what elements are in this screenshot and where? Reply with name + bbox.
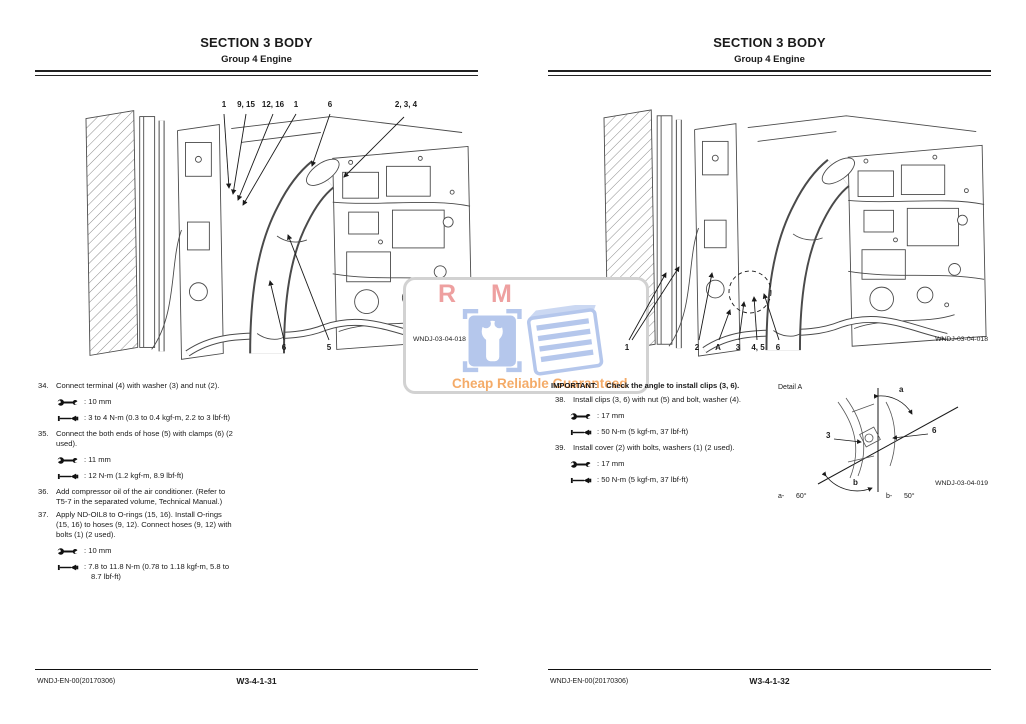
watermark-wrench-book-icon (440, 305, 620, 377)
angle-b-value: 50° (904, 493, 915, 500)
wrench-spec: : 10 mm (57, 397, 334, 407)
manual-spread: SECTION 3 BODY Group 4 Engine 1 9, 15 12… (0, 0, 1026, 724)
callout-label: 12, 16 (262, 100, 284, 109)
angle-a-value: 60° (796, 493, 807, 500)
callout-label: 9, 15 (237, 100, 255, 109)
callout-label: 1 (625, 343, 629, 352)
instruction-steps: IMPORTANT: Check the angle to install cl… (551, 381, 861, 491)
wrench-icon (57, 456, 79, 465)
torque-wrench-icon (57, 563, 79, 572)
angle-b-key: b- (886, 493, 892, 500)
figure-code: WNDJ-03-04-018 (935, 336, 988, 343)
important-text: Check the angle to install clips (3, 6). (606, 381, 739, 391)
step-34: 34. Connect terminal (4) with washer (3)… (38, 381, 334, 391)
torque-spec: : 3 to 4 N-m (0.3 to 0.4 kgf-m, 2.2 to 3… (57, 413, 334, 423)
torque-spec: : 12 N-m (1.2 kgf-m, 8.9 lbf-ft) (57, 471, 334, 481)
detail-callout-a: a (899, 385, 903, 394)
callout-label: 2 (695, 343, 699, 352)
page-footer: WNDJ-EN-00(20170306) W3-4-1-32 (548, 669, 991, 670)
important-label: IMPORTANT: (551, 381, 597, 391)
torque-spec: : 50 N-m (5 kgf-m, 37 lbf-ft) (570, 427, 861, 437)
step-38: 38. Install clips (3, 6) with nut (5) an… (555, 395, 861, 405)
callout-label: 4, 5 (751, 343, 764, 352)
torque-wrench-icon (57, 414, 79, 423)
detail-a-title: Detail A (778, 384, 802, 391)
detail-callout-6: 6 (932, 426, 936, 435)
wrench-spec: : 11 mm (57, 455, 334, 465)
callout-label: 3 (736, 343, 740, 352)
torque-spec: : 50 N-m (5 kgf-m, 37 lbf-ft) (570, 475, 861, 485)
important-note: IMPORTANT: Check the angle to install cl… (551, 381, 861, 391)
header-rule (548, 70, 991, 76)
engine-diagram (598, 102, 996, 360)
wrench-spec: : 10 mm (57, 546, 334, 556)
wrench-spec: : 17 mm (570, 459, 861, 469)
callout-label: 2, 3, 4 (395, 100, 417, 109)
section-title: SECTION 3 BODY (0, 35, 513, 50)
torque-wrench-icon (570, 428, 592, 437)
torque-spec: : 7.8 to 11.8 N-m (0.78 to 1.18 kgf-m, 5… (57, 562, 334, 582)
callout-label: A (715, 343, 721, 352)
figure-code: WNDJ-03-04-018 (413, 336, 466, 343)
wrench-icon (57, 547, 79, 556)
torque-wrench-icon (570, 476, 592, 485)
page-number: W3-4-1-31 (35, 676, 478, 686)
step-36: 36. Add compressor oil of the air condit… (38, 487, 334, 507)
page-number: W3-4-1-32 (548, 676, 991, 686)
angle-a-key: a- (778, 493, 784, 500)
detail-callout-3: 3 (826, 431, 830, 440)
group-subtitle: Group 4 Engine (0, 54, 513, 65)
torque-wrench-icon (57, 472, 79, 481)
callout-label: 5 (327, 343, 331, 352)
wrench-spec: : 17 mm (570, 411, 861, 421)
wrench-icon (57, 398, 79, 407)
detail-figure-code: WNDJ-03-04-019 (935, 480, 988, 487)
callout-label: 6 (776, 343, 780, 352)
wrench-icon (570, 460, 592, 469)
step-39: 39. Install cover (2) with bolts, washer… (555, 443, 861, 453)
callout-label: 6 (282, 343, 286, 352)
page-footer: WNDJ-EN-00(20170306) W3-4-1-31 (35, 669, 478, 670)
callout-label: 6 (328, 100, 332, 109)
callout-label: 1 (222, 100, 226, 109)
step-35: 35. Connect the both ends of hose (5) wi… (38, 429, 334, 449)
step-37: 37. Apply ND-OIL8 to O-rings (15, 16). I… (38, 510, 334, 540)
header-rule (35, 70, 478, 76)
group-subtitle: Group 4 Engine (513, 54, 1026, 65)
instruction-steps: 34. Connect terminal (4) with washer (3)… (38, 381, 334, 588)
detail-callout-b: b (853, 478, 858, 487)
section-title: SECTION 3 BODY (513, 35, 1026, 50)
wrench-icon (570, 412, 592, 421)
callout-label: 1 (294, 100, 298, 109)
